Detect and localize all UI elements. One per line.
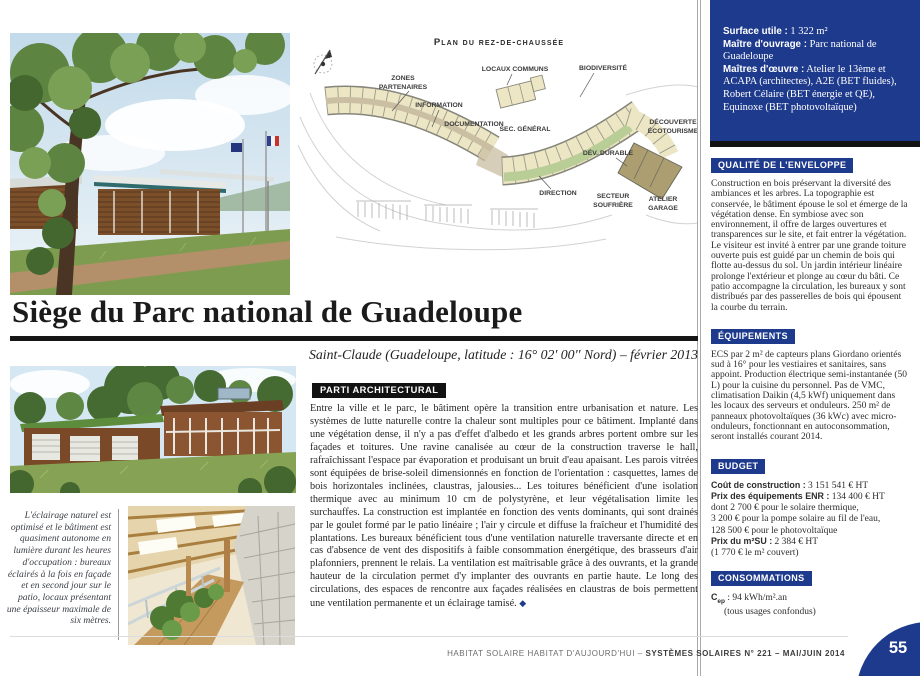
- budget-line: dont 2 700 € pour le solaire thermique,: [711, 502, 908, 513]
- section-heading-enveloppe: QUALITÉ DE L'ENVELOPPE: [711, 158, 853, 173]
- technical-sidebar: QUALITÉ DE L'ENVELOPPE Construction en b…: [711, 155, 908, 617]
- section-heading-parti-architectural: PARTI ARCHITECTURAL: [312, 383, 446, 398]
- plan-label-locaux-communs: LOCAUX COMMUNS: [482, 66, 549, 73]
- plan-label-information: INFORMATION: [415, 102, 463, 109]
- photo-caption: L'éclairage naturel est optimisé et le b…: [6, 510, 111, 627]
- info-maitre-ouvrage: Maître d'ouvrage : Parc national de Guad…: [723, 39, 910, 64]
- budget-lines: Coût de construction : 3 151 541 € HT Pr…: [711, 480, 908, 559]
- plan-label-ecotourisme: ÉCOTOURISME: [648, 126, 699, 135]
- plan-label-atelier: ATELIER: [649, 196, 678, 203]
- section-heading-consommations: CONSOMMATIONS: [711, 571, 812, 586]
- info-surface: Surface utile : 1 322 m²: [723, 26, 910, 39]
- section-heading-equipements: ÉQUIPEMENTS: [711, 329, 795, 344]
- plan-label-soufriere: SOUFRIÈRE: [593, 200, 633, 209]
- article-body: Entre la ville et le parc, le bâtiment o…: [310, 403, 698, 611]
- budget-line: (1 770 € le m² couvert): [711, 547, 908, 558]
- project-info-box: Surface utile : 1 322 m² Maître d'ouvrag…: [710, 0, 920, 141]
- plan-label-biodiversite: BIODIVERSITÉ: [579, 63, 627, 72]
- plan-label-sec-general: SEC. GÉNÉRAL: [500, 124, 551, 133]
- plan-label-dev-durable: DÉV. DURABLE: [583, 148, 634, 157]
- plan-label-zones: ZONES: [391, 75, 415, 82]
- end-diamond-icon: ◆: [519, 598, 526, 608]
- equipements-text: ECS par 2 m² de capteurs plans Giordano …: [711, 350, 908, 443]
- budget-line: 128 500 € pour le photovoltaïque: [711, 525, 908, 536]
- photo-green-roof-building: [10, 366, 296, 493]
- photo-interior-walkway: [128, 506, 295, 645]
- footer-hairline: [10, 636, 848, 637]
- title-rule: [10, 336, 698, 341]
- budget-line: Prix des équipements ENR : 134 400 € HT: [711, 491, 908, 502]
- cep-symbol: Cep: [711, 592, 725, 602]
- enveloppe-text: Construction en bois préservant la diver…: [711, 179, 908, 313]
- plan-label-partenaires: PARTENAIRES: [379, 84, 428, 91]
- magazine-page: Plan du rez-de-chaussée ZONES PARTENAIRE…: [0, 0, 920, 676]
- plan-label-garage: GARAGE: [648, 205, 678, 212]
- budget-line: Coût de construction : 3 151 541 € HT: [711, 480, 908, 491]
- photo-building-exterior: [10, 33, 290, 295]
- page-title: Siège du Parc national de Guadeloupe: [12, 294, 702, 330]
- plan-label-decouverte: DÉCOUVERTE: [649, 117, 697, 126]
- floor-plan-diagram: Plan du rez-de-chaussée ZONES PARTENAIRE…: [296, 25, 702, 273]
- info-box-rule: [710, 141, 920, 147]
- article-subtitle: Saint-Claude (Guadeloupe, latitude : 16°…: [110, 347, 698, 363]
- budget-line: 3 200 € pour la pompe solaire au fil de …: [711, 513, 908, 524]
- plan-label-secteur: SECTEUR: [597, 193, 630, 200]
- page-number: 55: [876, 639, 920, 658]
- info-maitres-oeuvre: Maîtres d'œuvre : Atelier le 13ème et AC…: [723, 64, 910, 114]
- section-heading-budget: BUDGET: [711, 459, 765, 474]
- plan-label-documentation: DOCUMENTATION: [444, 121, 503, 128]
- plan-title: Plan du rez-de-chaussée: [434, 37, 564, 48]
- footer-magazine-line: HABITAT SOLAIRE HABITAT D'AUJOURD'HUI – …: [447, 649, 845, 658]
- plan-label-direction: DIRECTION: [539, 190, 576, 197]
- consumption-note: (tous usages confondus): [711, 607, 908, 617]
- consumption-line: Cep : 94 kWh/m².an: [711, 592, 908, 607]
- caption-divider: [118, 509, 119, 640]
- budget-line: Prix du m²SU : 2 384 € HT: [711, 536, 908, 547]
